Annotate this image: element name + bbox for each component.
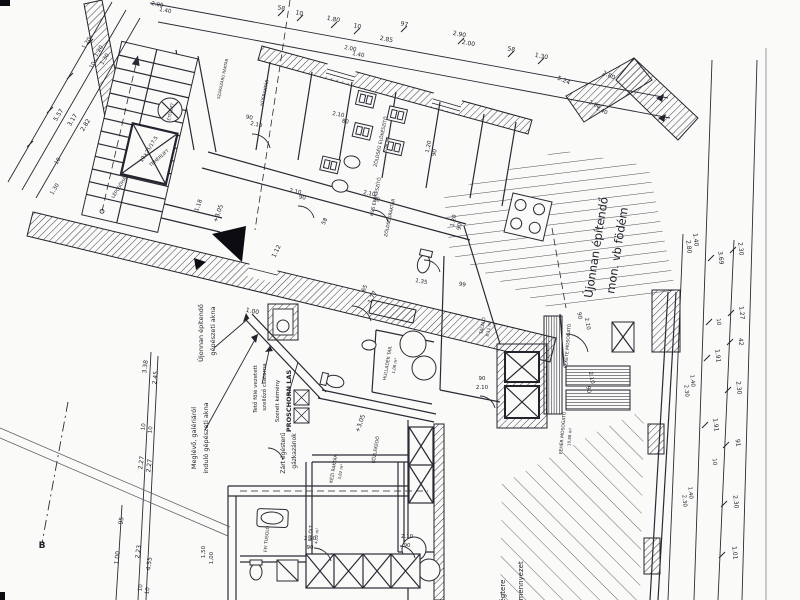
note-chimney-2: PROSCHORN LAS: [285, 370, 293, 433]
dims-text: 10: [295, 9, 304, 17]
dims-text: 10: [138, 583, 145, 591]
dims-text: 1.30: [49, 182, 61, 196]
note-new-shaft-2: gépészeti akna: [209, 306, 217, 355]
dims-text: 90: [404, 543, 411, 549]
dims-text: +3,05: [212, 203, 225, 223]
note-ceiling: álmennyezet: [517, 561, 525, 600]
dims-text: 91: [734, 439, 742, 448]
dims-text: 99: [458, 281, 467, 288]
dims-text: 5.24: [556, 75, 571, 87]
dims-text: 58: [277, 4, 286, 12]
note-roof-duct-2: szellőző csatorna: [262, 363, 268, 410]
dims-text: 2.30: [680, 494, 687, 507]
mechanical-shaft-box: [268, 304, 298, 340]
dims-text: 3.17: [66, 113, 79, 128]
dims-text: 1.01: [730, 546, 738, 560]
dims-text: 90: [431, 148, 438, 157]
dims-text: 80: [341, 118, 350, 125]
dims-text: 10: [141, 422, 148, 430]
dims-text: 1.00: [113, 551, 122, 565]
dims-text: 90: [307, 545, 314, 551]
dims-text: 2.10: [250, 121, 264, 129]
dims-text: 5.57: [52, 108, 65, 123]
toilet-lower: [250, 560, 262, 580]
section-line-b: [42, 402, 68, 543]
dims-text: 42: [737, 338, 745, 347]
dims-text: 58: [321, 217, 330, 226]
dims-text: 10: [54, 156, 63, 166]
dims-text: 90: [575, 312, 582, 320]
room-feher-area: 10,88 m²: [566, 427, 573, 446]
dims-text: 10: [148, 425, 155, 433]
counters: [544, 316, 634, 414]
note-new-shaft-1: Újonnan építendő: [196, 304, 205, 362]
dims-text: 2.30: [734, 381, 742, 395]
washbasins: [331, 154, 376, 350]
dims-text: 2.10: [476, 385, 489, 391]
room-ffi-tusolo: FFI TUSOLÓ: [262, 525, 271, 552]
room-feher-mosogato: FEHÉR MOSOGATÓ: [556, 411, 568, 455]
room-hulladek-area: 1,08 m²: [391, 357, 399, 374]
dims-text: 1,00: [209, 551, 215, 564]
dims-text: 1.18: [194, 198, 204, 212]
toilet-mid: [320, 372, 345, 389]
dims-text: 2.30: [736, 242, 744, 256]
scan-artifacts: [0, 0, 10, 600]
section-line-top: [255, 0, 290, 230]
dims-text: 1.91: [711, 418, 719, 432]
stove: [504, 193, 552, 241]
note-existing-shaft-1: Meglévő, galériáról: [189, 407, 198, 469]
dims-text: 1,50: [201, 545, 207, 558]
dims-text: 10: [353, 22, 362, 30]
dims-text: 90: [479, 376, 486, 382]
dims-text: 3.38: [141, 360, 150, 374]
dumbwaiter-block: [505, 352, 539, 418]
room-szarazaru: SZÁRAZÁRU RAKTÁR: [216, 58, 229, 99]
dims-text: 90: [298, 194, 307, 201]
dims-text: 10: [711, 458, 718, 466]
note-existing-shaft-2: induló gépészeti akna: [202, 402, 210, 473]
dims-text: 1.40: [159, 7, 173, 15]
braced-duct: [409, 427, 433, 503]
dims-text: 2.90: [452, 30, 467, 39]
room-fekete-mosogato: FEKETE MOSOGATÓ: [562, 323, 573, 368]
shower: [277, 560, 298, 581]
floor-grating: [306, 554, 420, 588]
dims-text: 3.69: [716, 251, 724, 265]
dims-text: 2.30: [731, 495, 739, 509]
dims-text: 58: [507, 45, 516, 53]
note-boilers-2: gázkazánok: [291, 433, 298, 469]
bathtub: [257, 508, 289, 527]
dims-text: 2.80: [684, 240, 692, 254]
dims-text: 2.10: [401, 534, 414, 540]
dims-text: 2.45: [151, 371, 160, 385]
note-roof-duct-1: Tető fölé vezetett: [252, 364, 259, 414]
room-husraktar: HÚSRAKTÁR: [258, 79, 270, 107]
dims-text: 1.35: [415, 278, 429, 286]
dims-text: 1.00: [245, 307, 260, 316]
dims-text: 1.40: [688, 374, 695, 387]
dims-text: 1.91: [713, 349, 721, 363]
dims-text: 65: [361, 284, 370, 293]
scanned-floor-plan: Újonnan építendőgépészeti aknaTető fölé …: [0, 0, 800, 600]
dims-text: 1.27: [737, 306, 745, 320]
prep-sinks: [320, 86, 413, 187]
dims-text: 1.80: [326, 15, 341, 24]
dims-text: 2.23: [134, 545, 143, 559]
dims-text: 1.30: [534, 52, 549, 61]
dims-text: 97: [400, 20, 409, 28]
dims-text: 2.10: [304, 536, 317, 542]
dims-text: 1.40: [352, 51, 366, 59]
dims-text: 95: [118, 516, 126, 525]
dims-text: 2.85: [379, 35, 394, 44]
dims-text: 10: [715, 318, 722, 326]
note-chimney-1: Szerelt kémény: [274, 379, 281, 422]
new-slab-hatch: [444, 150, 676, 314]
room-zoldsegraktar: ZÖLDSÉGRAKTÁR: [381, 198, 397, 238]
dims-text: +3,05: [354, 413, 367, 433]
dims-text: 2.10: [583, 317, 591, 331]
dims-text: 10: [145, 586, 152, 594]
dims-text: 2.30: [682, 384, 689, 397]
room-kozlekedo: KÖZLEKEDŐ: [370, 435, 382, 464]
dims-text: 1.40: [691, 233, 699, 247]
dims-text: 4.55: [145, 557, 154, 571]
dims-text: 2.00: [461, 39, 476, 48]
dims-text: 1.12: [271, 244, 283, 259]
section-marker-b: B: [39, 541, 46, 551]
floor-plan-svg: Újonnan építendőgépészeti aknaTető fölé …: [0, 0, 800, 600]
gas-boilers: [294, 390, 309, 423]
note-airspace: légtere: [499, 580, 507, 600]
note-boilers-1: Zárt égésterű: [280, 432, 287, 473]
room-kezi-area: 3,82 m²: [337, 463, 345, 480]
toilet-upper: [416, 249, 433, 274]
